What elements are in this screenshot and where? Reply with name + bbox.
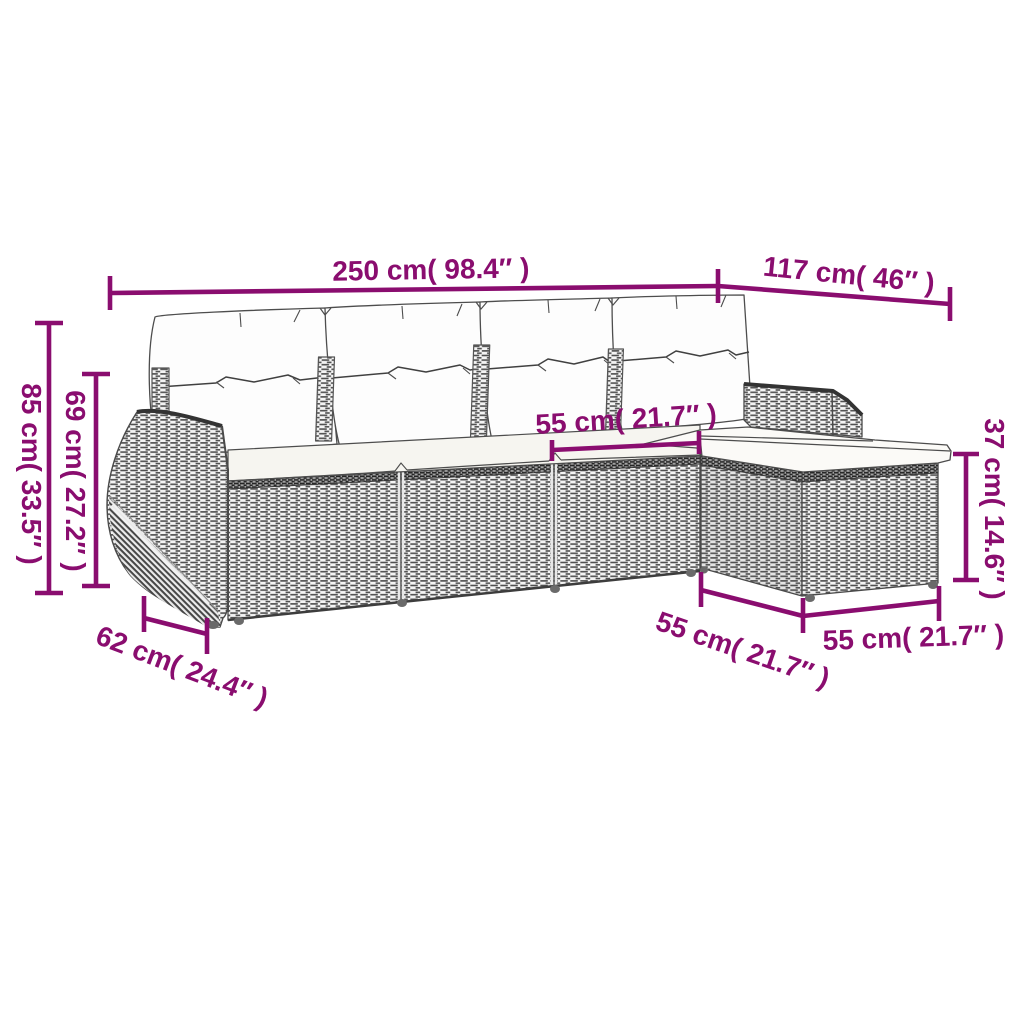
svg-text:85 cm( 33.5″ ): 85 cm( 33.5″ ) xyxy=(16,383,47,565)
svg-text:37 cm( 14.6″ ): 37 cm( 14.6″ ) xyxy=(979,418,1010,600)
svg-text:69 cm( 27.2″ ): 69 cm( 27.2″ ) xyxy=(60,390,91,572)
svg-text:250 cm( 98.4″ ): 250 cm( 98.4″ ) xyxy=(332,252,530,286)
svg-text:55 cm( 21.7″ ): 55 cm( 21.7″ ) xyxy=(822,619,1004,656)
